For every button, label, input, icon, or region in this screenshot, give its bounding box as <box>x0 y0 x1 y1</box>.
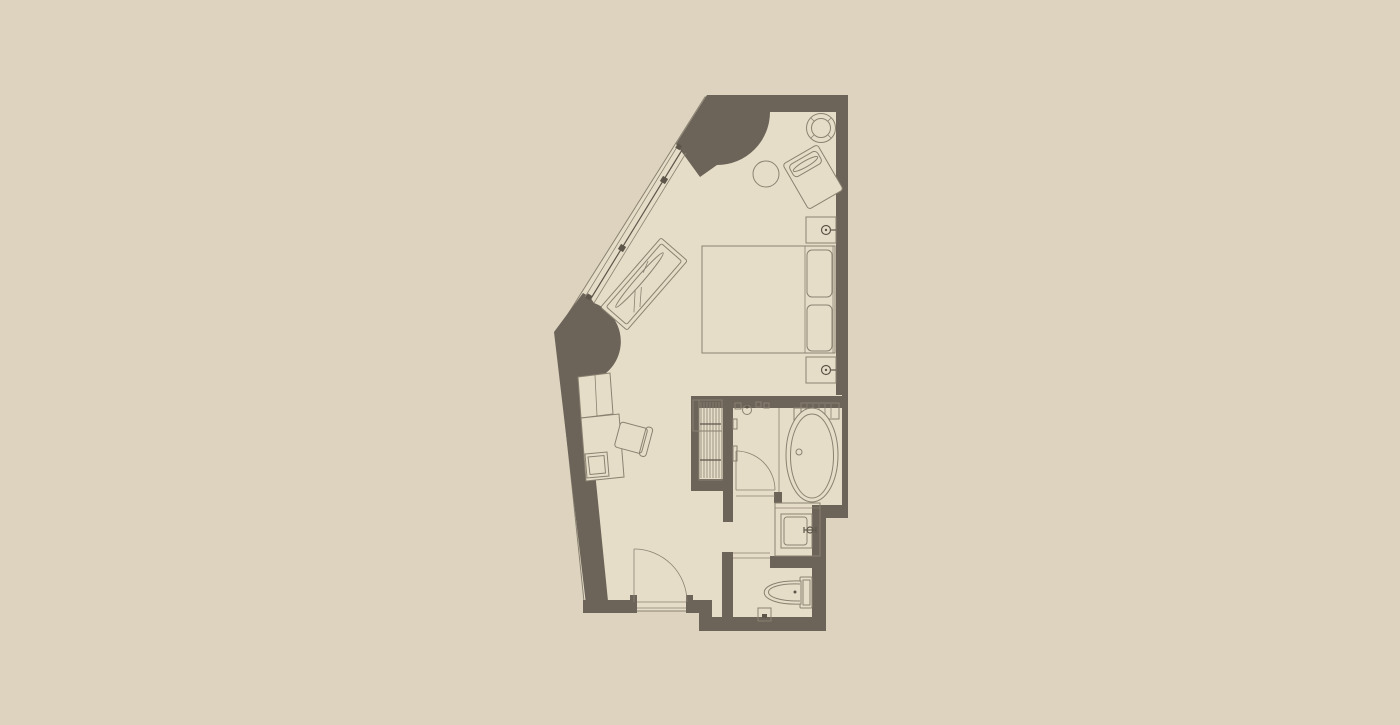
nightstand-lower <box>806 357 836 383</box>
wall-right-bathroom <box>842 390 848 518</box>
wall-closet-left <box>691 396 699 490</box>
entry-door-jamb-left <box>630 595 637 613</box>
vanity-washbasin <box>781 514 816 548</box>
wall-closet-back <box>723 403 733 491</box>
bath-door-jamb <box>723 491 733 522</box>
double-bed <box>702 246 835 353</box>
wall-right-upper <box>836 95 848 395</box>
floor-plan-canvas <box>0 0 1400 725</box>
wall-wc-left <box>722 552 733 620</box>
wall-right-lower <box>812 505 826 631</box>
bathtub <box>786 408 838 502</box>
wall-wc-top <box>770 556 812 568</box>
wall-closet-bottom <box>691 479 733 491</box>
hanger-rail-lines <box>701 402 719 478</box>
cabinet <box>578 373 613 418</box>
flush-button <box>794 591 797 594</box>
partition-end-post <box>774 492 782 503</box>
nightstand-upper <box>806 217 836 243</box>
